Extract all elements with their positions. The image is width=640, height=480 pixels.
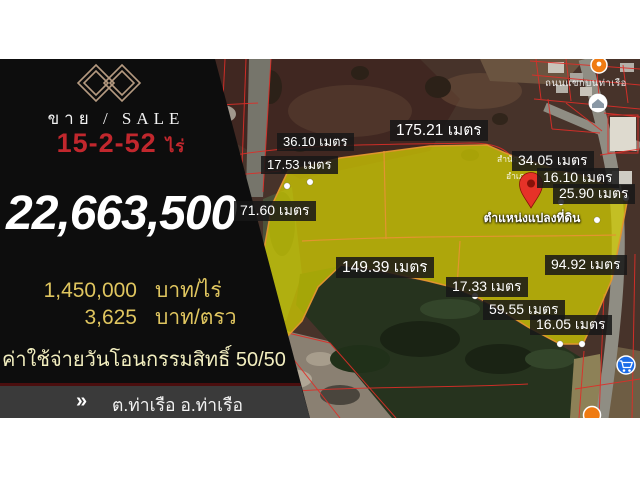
road-name-label: ถนนแขกบนท่าเรือ [545, 78, 627, 89]
listing-image: สำนัก อำเภอ ถนนแขกบนท่าเรือ ตำแหน่งแปลงท… [0, 0, 640, 480]
chevron-right-icon: » [76, 390, 87, 413]
price-per-rai-unit: บาท/ไร่ [155, 277, 222, 304]
price-per-wah-unit: บาท/ตรว [155, 304, 237, 331]
double-diamond-logo-icon [75, 62, 155, 104]
location-label: ต.ท่าเรือ อ.ท่าเรือ จ.อยุธยา [112, 391, 312, 447]
info-panel: ขาย / SALE 15-2-52ไร่ 22,663,500 1,450,0… [0, 59, 312, 418]
price-row: 1,450,000 บาท/ไร่ [0, 277, 262, 304]
location-bar: » ต.ท่าเรือ อ.ท่าเรือ จ.อยุธยา [0, 386, 312, 418]
land-area: 15-2-52ไร่ [0, 128, 242, 160]
shopping-cart-icon [617, 356, 635, 374]
unit-price-table: 1,450,000 บาท/ไร่ 3,625 บาท/ตรว [0, 277, 262, 331]
total-price: 22,663,500 [6, 186, 306, 241]
area-value: 15-2-52 [57, 128, 157, 158]
price-row: 3,625 บาท/ตรว [0, 304, 262, 331]
price-per-wah-value: 3,625 [0, 304, 137, 331]
orange-poi-top-icon [591, 59, 607, 73]
plot-position-label: ตำแหน่งแปลงที่ดิน [484, 209, 582, 225]
area-unit: ไร่ [166, 137, 186, 156]
poi-text-1: สำนัก [497, 154, 518, 164]
orange-poi-bottom-icon [584, 407, 601, 419]
price-per-rai-value: 1,450,000 [0, 277, 137, 304]
transfer-fee-note: ค่าใช้จ่ายวันโอนกรรมสิทธิ์ 50/50 [2, 345, 302, 375]
place-circle-icon [589, 94, 608, 113]
